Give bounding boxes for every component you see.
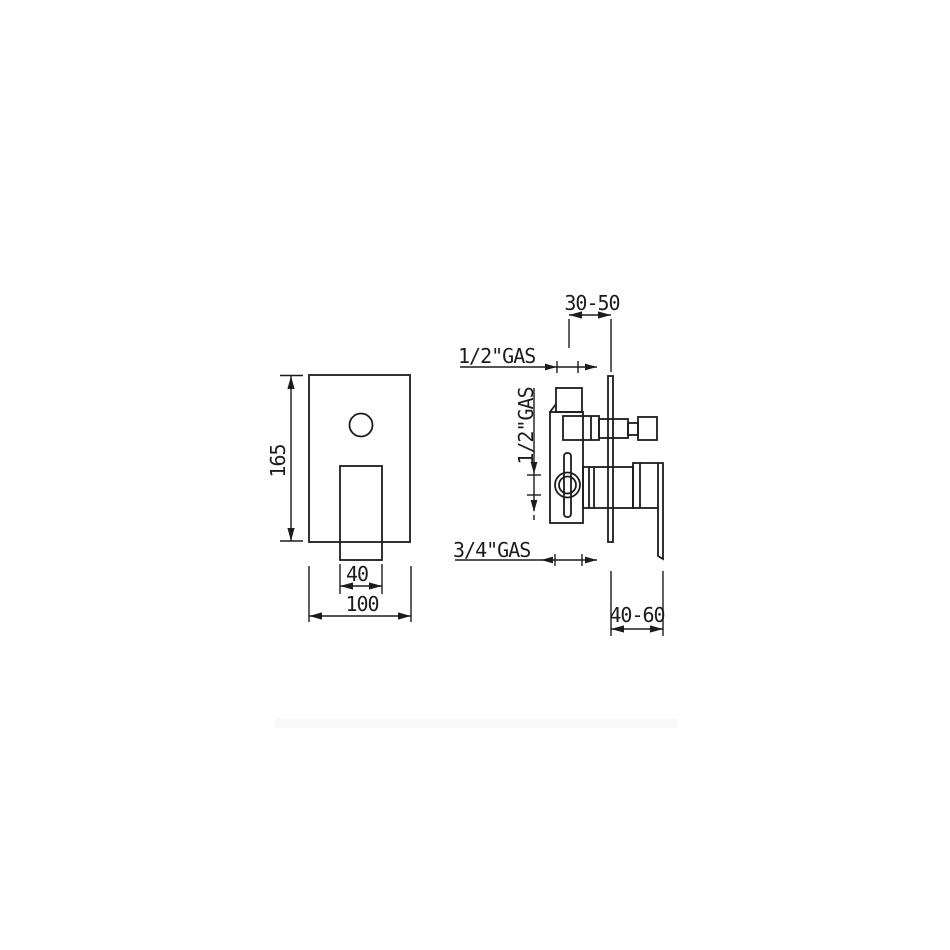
dim-100-label: 100 — [345, 592, 378, 616]
arrow-right-icon — [545, 364, 557, 371]
faint-divider-band — [275, 719, 677, 728]
arrow-left-icon — [309, 612, 322, 619]
arrow-down-icon — [531, 462, 538, 474]
side-view: 30-50 1/2"GAS 1/2"GAS 3/4"GAS — [453, 291, 665, 636]
arrow-right-icon — [585, 557, 597, 564]
cross-knob-arm — [564, 453, 571, 517]
arrow-right-icon — [398, 612, 411, 619]
half-gas-top-label: 1/2"GAS — [458, 344, 535, 368]
dim-165-label: 165 — [266, 444, 290, 477]
arrow-left-icon — [541, 557, 553, 564]
upper-pipe-nipple — [638, 417, 657, 440]
dim-30-50-label: 30-50 — [564, 291, 619, 315]
dim-40-label: 40 — [346, 562, 368, 586]
dim-plate-height: 165 — [266, 376, 303, 542]
upper-pipe-neck — [628, 423, 638, 435]
label-top-connection: 1/2"GAS — [458, 344, 597, 373]
diverter-button — [350, 414, 373, 437]
dim-depth-bottom: 40-60 — [609, 571, 664, 636]
front-plate — [309, 375, 410, 542]
arrow-up-icon — [287, 376, 294, 389]
top-outlet-stub — [556, 388, 582, 412]
arrow-down-icon — [531, 500, 538, 512]
valve-body — [550, 412, 583, 523]
front-handle — [340, 466, 382, 560]
cross-knob-hub-inner — [559, 477, 576, 494]
arrow-down-icon — [287, 528, 294, 541]
dim-depth-top: 30-50 — [564, 291, 619, 372]
mixer-valve-diagram: 165 40 100 — [0, 0, 950, 950]
dim-handle-width: 40 — [340, 562, 382, 594]
upper-pipe — [563, 416, 599, 440]
three-quarter-gas-label: 3/4"GAS — [453, 538, 530, 562]
label-bottom-connection: 3/4"GAS — [453, 538, 597, 566]
label-side-connection: 1/2"GAS — [514, 387, 541, 520]
technical-drawing-page: 165 40 100 — [0, 0, 950, 950]
handle-cap — [633, 463, 658, 508]
front-view: 165 40 100 — [266, 375, 411, 622]
dim-40-60-label: 40-60 — [609, 603, 664, 627]
wall-plate-edge — [608, 376, 613, 542]
arrow-right-icon — [369, 582, 382, 589]
arrow-right-icon — [585, 364, 597, 371]
body-chamfer — [550, 404, 556, 412]
